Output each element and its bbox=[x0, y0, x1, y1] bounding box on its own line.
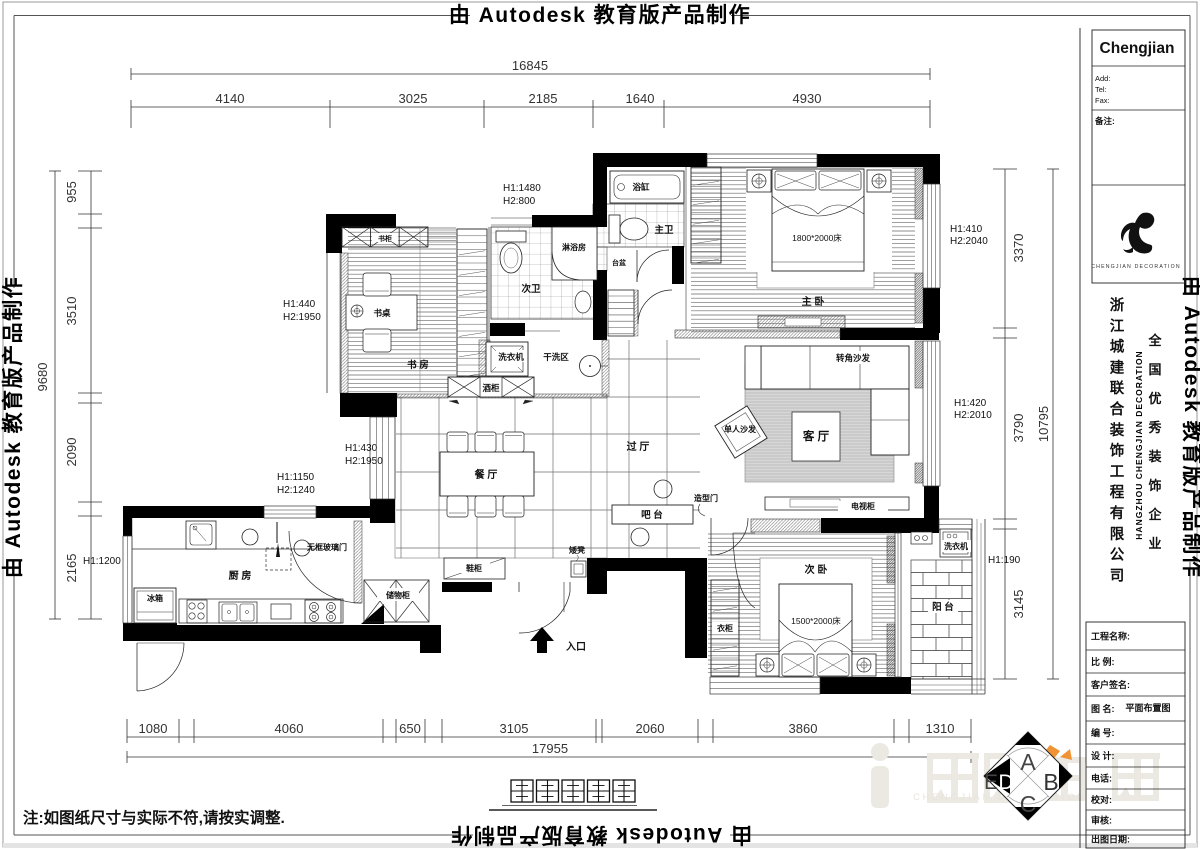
svg-text:限: 限 bbox=[1110, 526, 1125, 543]
svg-text:造型门: 造型门 bbox=[694, 493, 718, 503]
svg-text:国: 国 bbox=[1148, 362, 1161, 377]
svg-text:浴缸: 浴缸 bbox=[632, 182, 650, 192]
svg-text:3860: 3860 bbox=[789, 721, 818, 736]
svg-text:HANGZHOU CHENGJIAN DECORATION: HANGZHOU CHENGJIAN DECORATION bbox=[1134, 350, 1144, 539]
svg-text:备注:: 备注: bbox=[1094, 116, 1115, 126]
svg-text:由 Autodesk 教育版产品制作: 由 Autodesk 教育版产品制作 bbox=[1, 276, 25, 578]
svg-text:业: 业 bbox=[1148, 536, 1161, 551]
svg-text:单人沙发: 单人沙发 bbox=[724, 424, 757, 434]
svg-text:Tel:: Tel: bbox=[1095, 85, 1107, 94]
svg-text:16845: 16845 bbox=[512, 58, 548, 73]
svg-text:审核:: 审核: bbox=[1091, 815, 1112, 826]
svg-text:洗衣机: 洗衣机 bbox=[498, 352, 524, 362]
svg-text:3025: 3025 bbox=[399, 91, 428, 106]
svg-text:储物柜: 储物柜 bbox=[385, 590, 410, 600]
svg-text:编 号:: 编 号: bbox=[1091, 727, 1115, 738]
svg-text:注:如图纸尺寸与实际不符,请按实调整.: 注:如图纸尺寸与实际不符,请按实调整. bbox=[23, 808, 285, 827]
svg-text:由 Autodesk 教育版产品制作: 由 Autodesk 教育版产品制作 bbox=[450, 823, 752, 847]
svg-text:H1:440: H1:440 bbox=[283, 299, 316, 310]
svg-text:淋浴房: 淋浴房 bbox=[562, 242, 586, 252]
svg-text:H2:2010: H2:2010 bbox=[954, 410, 992, 421]
svg-text:过 厅: 过 厅 bbox=[627, 440, 650, 453]
svg-text:D: D bbox=[998, 771, 1013, 794]
svg-text:秀: 秀 bbox=[1147, 420, 1162, 435]
svg-text:4930: 4930 bbox=[793, 91, 822, 106]
svg-text:全: 全 bbox=[1147, 333, 1162, 348]
svg-text:2185: 2185 bbox=[529, 91, 558, 106]
svg-text:3370: 3370 bbox=[1011, 234, 1026, 263]
svg-text:比 例:: 比 例: bbox=[1091, 656, 1115, 667]
svg-text:装: 装 bbox=[1147, 449, 1161, 464]
svg-text:CHENGJIAN DECORATION: CHENGJIAN DECORATION bbox=[1091, 264, 1181, 270]
svg-text:Chengjian: Chengjian bbox=[1100, 40, 1175, 57]
svg-text:H1:1480: H1:1480 bbox=[503, 183, 541, 194]
svg-text:江: 江 bbox=[1110, 317, 1125, 335]
svg-text:由 Autodesk 教育版产品制作: 由 Autodesk 教育版产品制作 bbox=[449, 3, 751, 27]
svg-text:H2:1950: H2:1950 bbox=[345, 456, 383, 467]
svg-text:H2:800: H2:800 bbox=[503, 196, 536, 207]
svg-text:装: 装 bbox=[1109, 421, 1125, 439]
svg-text:司: 司 bbox=[1110, 567, 1125, 584]
svg-text:设 计:: 设 计: bbox=[1091, 750, 1115, 761]
svg-text:书 房: 书 房 bbox=[407, 359, 429, 371]
svg-text:优: 优 bbox=[1148, 391, 1161, 406]
svg-text:平面布置图: 平面布置图 bbox=[1125, 702, 1170, 713]
svg-text:有: 有 bbox=[1110, 504, 1125, 522]
svg-text:Fax:: Fax: bbox=[1095, 96, 1110, 105]
svg-text:厨 房: 厨 房 bbox=[229, 569, 252, 582]
svg-text:H1:410: H1:410 bbox=[950, 224, 983, 235]
svg-text:浙: 浙 bbox=[1110, 296, 1125, 314]
svg-text:H1:420: H1:420 bbox=[954, 398, 987, 409]
svg-text:书桌: 书桌 bbox=[373, 308, 391, 318]
svg-text:2060: 2060 bbox=[636, 721, 665, 736]
svg-text:无框玻璃门: 无框玻璃门 bbox=[306, 542, 347, 552]
svg-text:客 厅: 客 厅 bbox=[802, 429, 830, 443]
svg-text:台盆: 台盆 bbox=[612, 258, 627, 267]
svg-text:衣柜: 衣柜 bbox=[717, 623, 733, 633]
svg-text:C: C bbox=[1020, 791, 1037, 817]
svg-text:书柜: 书柜 bbox=[378, 234, 392, 243]
svg-text:Add:: Add: bbox=[1095, 74, 1110, 83]
svg-text:3790: 3790 bbox=[1011, 414, 1026, 443]
svg-text:饰: 饰 bbox=[1110, 442, 1125, 460]
svg-text:次卫: 次卫 bbox=[521, 283, 541, 295]
svg-text:校对:: 校对: bbox=[1091, 794, 1112, 805]
svg-text:955: 955 bbox=[64, 181, 79, 203]
svg-text:工程名称:: 工程名称: bbox=[1091, 631, 1130, 642]
svg-text:合: 合 bbox=[1109, 400, 1125, 418]
svg-text:17955: 17955 bbox=[532, 741, 568, 756]
svg-text:电话:: 电话: bbox=[1091, 773, 1112, 784]
svg-text:公: 公 bbox=[1110, 547, 1125, 564]
svg-text:H2:2040: H2:2040 bbox=[950, 236, 988, 247]
svg-text:3145: 3145 bbox=[1011, 590, 1026, 619]
svg-text:洗衣机: 洗衣机 bbox=[944, 541, 968, 551]
svg-text:9680: 9680 bbox=[35, 363, 50, 392]
svg-text:电视柜: 电视柜 bbox=[851, 501, 875, 511]
svg-text:10795: 10795 bbox=[1036, 406, 1051, 442]
svg-text:鞋柜: 鞋柜 bbox=[466, 563, 482, 573]
svg-text:干洗区: 干洗区 bbox=[543, 352, 569, 362]
svg-text:4060: 4060 bbox=[275, 721, 304, 736]
svg-text:650: 650 bbox=[399, 721, 421, 736]
svg-text:E: E bbox=[984, 771, 998, 794]
svg-text:转角沙发: 转角沙发 bbox=[836, 353, 871, 363]
svg-text:1800*2000床: 1800*2000床 bbox=[792, 233, 842, 243]
svg-text:H1:1150: H1:1150 bbox=[277, 472, 315, 483]
svg-text:1080: 1080 bbox=[139, 721, 168, 736]
svg-text:程: 程 bbox=[1110, 484, 1125, 501]
svg-text:城: 城 bbox=[1110, 338, 1125, 356]
svg-text:客户签名:: 客户签名: bbox=[1090, 679, 1130, 690]
svg-text:2165: 2165 bbox=[64, 554, 79, 583]
svg-text:吧 台: 吧 台 bbox=[641, 509, 663, 521]
svg-text:H1:1200: H1:1200 bbox=[83, 556, 121, 567]
svg-text:图 名:: 图 名: bbox=[1091, 703, 1115, 714]
svg-text:酒柜: 酒柜 bbox=[482, 383, 500, 393]
svg-text:矮凳: 矮凳 bbox=[568, 545, 586, 555]
svg-text:H1:430: H1:430 bbox=[345, 443, 378, 454]
svg-text:企: 企 bbox=[1147, 507, 1162, 522]
svg-text:冰箱: 冰箱 bbox=[147, 593, 163, 603]
svg-text:次 卧: 次 卧 bbox=[805, 563, 828, 576]
svg-text:由 Autodesk 教育版产品制作: 由 Autodesk 教育版产品制作 bbox=[1180, 276, 1200, 578]
svg-text:建: 建 bbox=[1110, 358, 1125, 376]
svg-text:1640: 1640 bbox=[626, 91, 655, 106]
svg-text:3510: 3510 bbox=[64, 297, 79, 326]
svg-text:饰: 饰 bbox=[1148, 478, 1161, 493]
svg-text:H2:1240: H2:1240 bbox=[277, 485, 315, 496]
svg-text:1500*2000床: 1500*2000床 bbox=[791, 616, 841, 626]
svg-text:联: 联 bbox=[1110, 380, 1125, 397]
svg-text:工: 工 bbox=[1110, 464, 1125, 480]
svg-text:A: A bbox=[1020, 749, 1036, 775]
svg-text:阳 台: 阳 台 bbox=[932, 601, 954, 613]
svg-text:入口: 入口 bbox=[566, 641, 586, 653]
svg-text:餐 厅: 餐 厅 bbox=[474, 468, 498, 481]
svg-text:主卫: 主卫 bbox=[654, 224, 674, 236]
svg-text:主 卧: 主 卧 bbox=[802, 295, 825, 308]
svg-text:H2:1950: H2:1950 bbox=[283, 312, 321, 323]
svg-text:H1:190: H1:190 bbox=[988, 555, 1021, 566]
svg-text:1310: 1310 bbox=[926, 721, 955, 736]
svg-text:出图日期:: 出图日期: bbox=[1091, 834, 1130, 845]
svg-text:B: B bbox=[1043, 769, 1058, 795]
svg-text:2090: 2090 bbox=[64, 438, 79, 467]
svg-text:3105: 3105 bbox=[500, 721, 529, 736]
svg-text:4140: 4140 bbox=[216, 91, 245, 106]
